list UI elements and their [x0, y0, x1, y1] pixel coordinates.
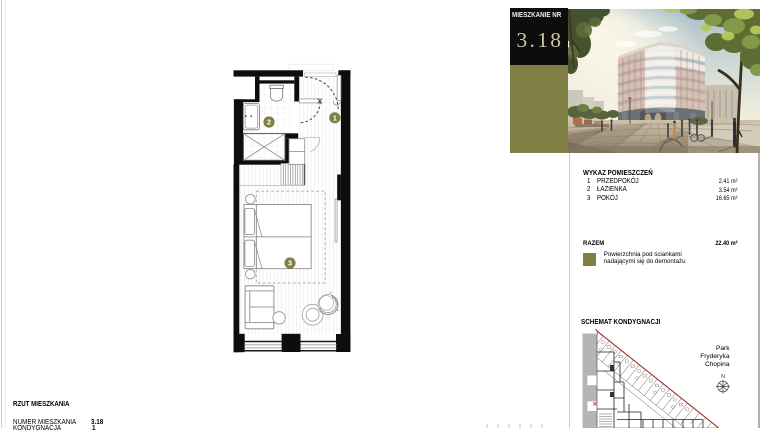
svg-text:2: 2: [267, 118, 271, 127]
svg-text:1: 1: [333, 113, 337, 122]
svg-text:N: N: [721, 374, 725, 380]
svg-text:3: 3: [288, 259, 292, 268]
